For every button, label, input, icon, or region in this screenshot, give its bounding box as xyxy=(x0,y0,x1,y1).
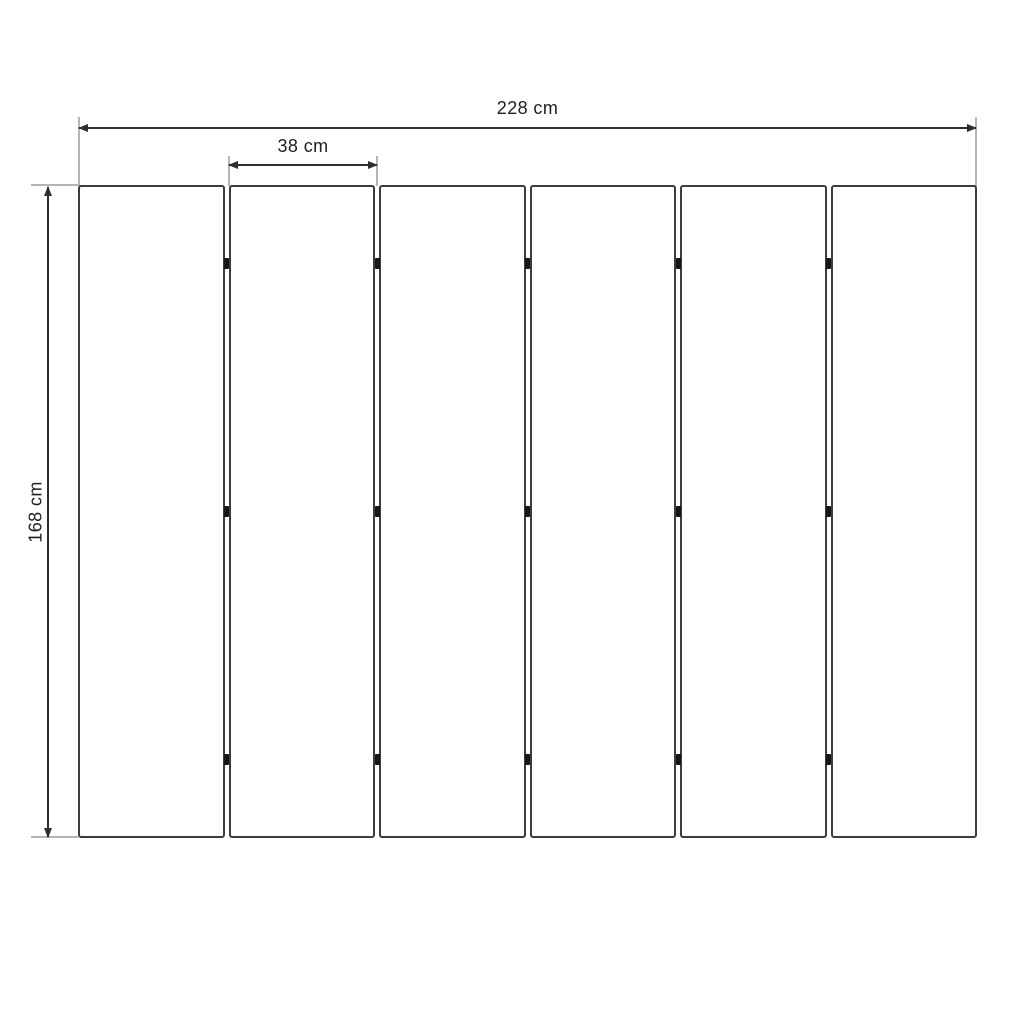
arrow-right-icon xyxy=(368,161,378,169)
hinge-mark xyxy=(525,258,530,269)
hinge-mark xyxy=(676,506,681,517)
panel-width-dimension-line xyxy=(229,164,377,166)
hinge-mark xyxy=(826,506,831,517)
hinge-mark xyxy=(224,258,229,269)
hinge-mark xyxy=(826,754,831,765)
total-width-dimension-line xyxy=(79,127,976,129)
panel-dimension-drawing: 228 cm 38 cm 168 cm xyxy=(0,0,1024,1024)
hinge-mark xyxy=(525,506,530,517)
panel-2 xyxy=(229,185,376,838)
panel-4 xyxy=(530,185,677,838)
arrow-up-icon xyxy=(44,186,52,196)
arrow-left-icon xyxy=(228,161,238,169)
hinge-mark xyxy=(375,506,380,517)
panel-1 xyxy=(78,185,225,838)
panel-width-label: 38 cm xyxy=(229,136,377,157)
extension-line-height-top xyxy=(31,184,78,186)
hinge-mark xyxy=(676,258,681,269)
hinge-mark xyxy=(676,754,681,765)
hinge-mark xyxy=(375,754,380,765)
arrow-left-icon xyxy=(78,124,88,132)
hinge-mark xyxy=(826,258,831,269)
hinge-mark xyxy=(224,506,229,517)
hinge-mark xyxy=(525,754,530,765)
arrow-down-icon xyxy=(44,828,52,838)
height-dimension-line xyxy=(47,187,49,837)
arrow-right-icon xyxy=(967,124,977,132)
hinge-mark xyxy=(224,754,229,765)
panels-group xyxy=(78,185,977,838)
panel-5 xyxy=(680,185,827,838)
panel-6 xyxy=(831,185,978,838)
hinge-mark xyxy=(375,258,380,269)
panel-3 xyxy=(379,185,526,838)
height-label: 168 cm xyxy=(26,481,47,542)
extension-line-height-bottom xyxy=(31,836,78,838)
total-width-label: 228 cm xyxy=(79,98,976,119)
